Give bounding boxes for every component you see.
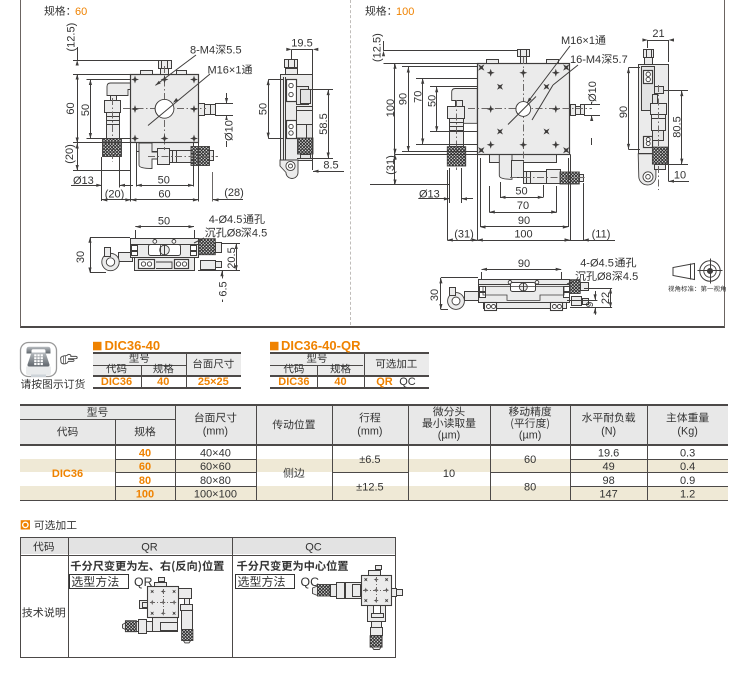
svg-text:(Kg): (Kg) <box>677 426 697 438</box>
svg-text:DIC36: DIC36 <box>278 376 309 388</box>
svg-text:80: 80 <box>524 481 536 493</box>
svg-text:±12.5: ±12.5 <box>356 481 383 493</box>
svg-text:30: 30 <box>429 289 441 301</box>
svg-text:±6.5: ±6.5 <box>359 454 380 466</box>
svg-text:(µm): (µm) <box>519 430 541 442</box>
svg-text:19.5: 19.5 <box>291 38 312 50</box>
svg-text:0.4: 0.4 <box>680 461 695 473</box>
svg-text:60: 60 <box>158 189 170 201</box>
svg-text:QR: QR <box>376 376 393 388</box>
svg-text:QR: QR <box>141 542 158 554</box>
svg-text:30: 30 <box>75 251 87 263</box>
svg-text:QC: QC <box>399 376 416 388</box>
svg-text:(20): (20) <box>105 189 125 201</box>
svg-text:(31): (31) <box>454 228 474 240</box>
svg-text:80×80: 80×80 <box>200 475 231 487</box>
svg-text:4-Ø4.5: 4-Ø4.5 <box>580 258 614 270</box>
svg-text:50: 50 <box>258 103 270 115</box>
svg-text:90: 90 <box>518 215 530 227</box>
svg-text:40×40: 40×40 <box>200 448 231 460</box>
svg-text:40: 40 <box>139 448 151 460</box>
svg-text:58.5: 58.5 <box>318 113 330 134</box>
svg-text:22: 22 <box>600 292 612 304</box>
svg-text:60×60: 60×60 <box>200 461 231 473</box>
svg-text:9: 9 <box>585 301 596 307</box>
svg-text:40: 40 <box>334 376 346 388</box>
svg-text:90: 90 <box>618 106 630 118</box>
svg-text:(31): (31) <box>385 155 397 175</box>
svg-text:21: 21 <box>652 28 664 40</box>
svg-text:8.5: 8.5 <box>323 160 338 172</box>
svg-text:60: 60 <box>75 6 87 18</box>
svg-text:(12.5): (12.5) <box>65 23 77 52</box>
svg-text:(mm): (mm) <box>203 426 228 438</box>
svg-text:90: 90 <box>398 93 410 105</box>
svg-text:Ø8: Ø8 <box>227 228 242 240</box>
svg-text:90: 90 <box>518 258 530 270</box>
svg-text:4-Ø4.5: 4-Ø4.5 <box>209 214 243 226</box>
svg-text:QC: QC <box>301 575 320 589</box>
svg-text:0.9: 0.9 <box>680 475 695 487</box>
svg-text:0.3: 0.3 <box>680 448 695 460</box>
svg-text:8-M4: 8-M4 <box>190 45 215 57</box>
svg-text:100×100: 100×100 <box>194 488 237 500</box>
svg-text:(20): (20) <box>64 144 76 164</box>
svg-text:QR: QR <box>134 575 153 589</box>
svg-text:10: 10 <box>674 169 686 181</box>
svg-text:19.6: 19.6 <box>598 448 619 460</box>
svg-text:5.7: 5.7 <box>612 54 627 66</box>
svg-text:25×25: 25×25 <box>198 376 229 388</box>
svg-text:50: 50 <box>158 174 170 186</box>
svg-text:DIC36-40-QR: DIC36-40-QR <box>281 338 361 353</box>
svg-text:80: 80 <box>139 475 151 487</box>
svg-text:Ø10: Ø10 <box>587 81 599 102</box>
svg-text:100: 100 <box>136 488 154 500</box>
svg-text:DIC36: DIC36 <box>52 468 83 480</box>
svg-text:147: 147 <box>599 488 617 500</box>
svg-text:Ø10: Ø10 <box>224 120 236 141</box>
svg-text:(12.5): (12.5) <box>372 33 384 62</box>
svg-text:Ø8: Ø8 <box>597 271 612 283</box>
svg-text:16-M4: 16-M4 <box>570 54 601 66</box>
svg-text:(µm): (µm) <box>438 430 460 442</box>
svg-text:6.5: 6.5 <box>218 281 230 296</box>
svg-text:70: 70 <box>413 91 425 103</box>
svg-text:(11): (11) <box>592 228 611 240</box>
svg-text:49: 49 <box>602 461 614 473</box>
svg-text:QC: QC <box>305 542 322 554</box>
svg-text:5.5: 5.5 <box>226 45 241 57</box>
svg-text:DIC36: DIC36 <box>101 376 132 388</box>
svg-text:100: 100 <box>396 6 414 18</box>
svg-text:(28): (28) <box>224 187 244 199</box>
svg-text:(N): (N) <box>601 426 616 438</box>
svg-text:4.5: 4.5 <box>623 271 638 283</box>
svg-text:50: 50 <box>80 104 92 116</box>
svg-text:(mm): (mm) <box>357 426 382 438</box>
svg-text:98: 98 <box>602 475 614 487</box>
svg-text:40: 40 <box>157 376 169 388</box>
svg-text:70: 70 <box>517 200 529 212</box>
svg-text:100: 100 <box>385 99 397 117</box>
svg-text:60: 60 <box>65 102 77 114</box>
svg-text:60: 60 <box>524 454 536 466</box>
svg-text:M16×1: M16×1 <box>561 35 595 47</box>
svg-text:20.5: 20.5 <box>226 247 238 268</box>
svg-text:10: 10 <box>443 468 455 480</box>
svg-text:4.5: 4.5 <box>252 228 267 240</box>
svg-text:60: 60 <box>139 461 151 473</box>
svg-text:50: 50 <box>158 216 170 228</box>
svg-text:100: 100 <box>514 228 532 240</box>
svg-text:DIC36-40: DIC36-40 <box>105 338 161 353</box>
svg-text:1.2: 1.2 <box>680 488 695 500</box>
svg-text:50: 50 <box>515 185 527 197</box>
svg-text:50: 50 <box>427 95 439 107</box>
svg-text:80.5: 80.5 <box>672 116 684 137</box>
svg-text:M16×1: M16×1 <box>208 65 242 77</box>
